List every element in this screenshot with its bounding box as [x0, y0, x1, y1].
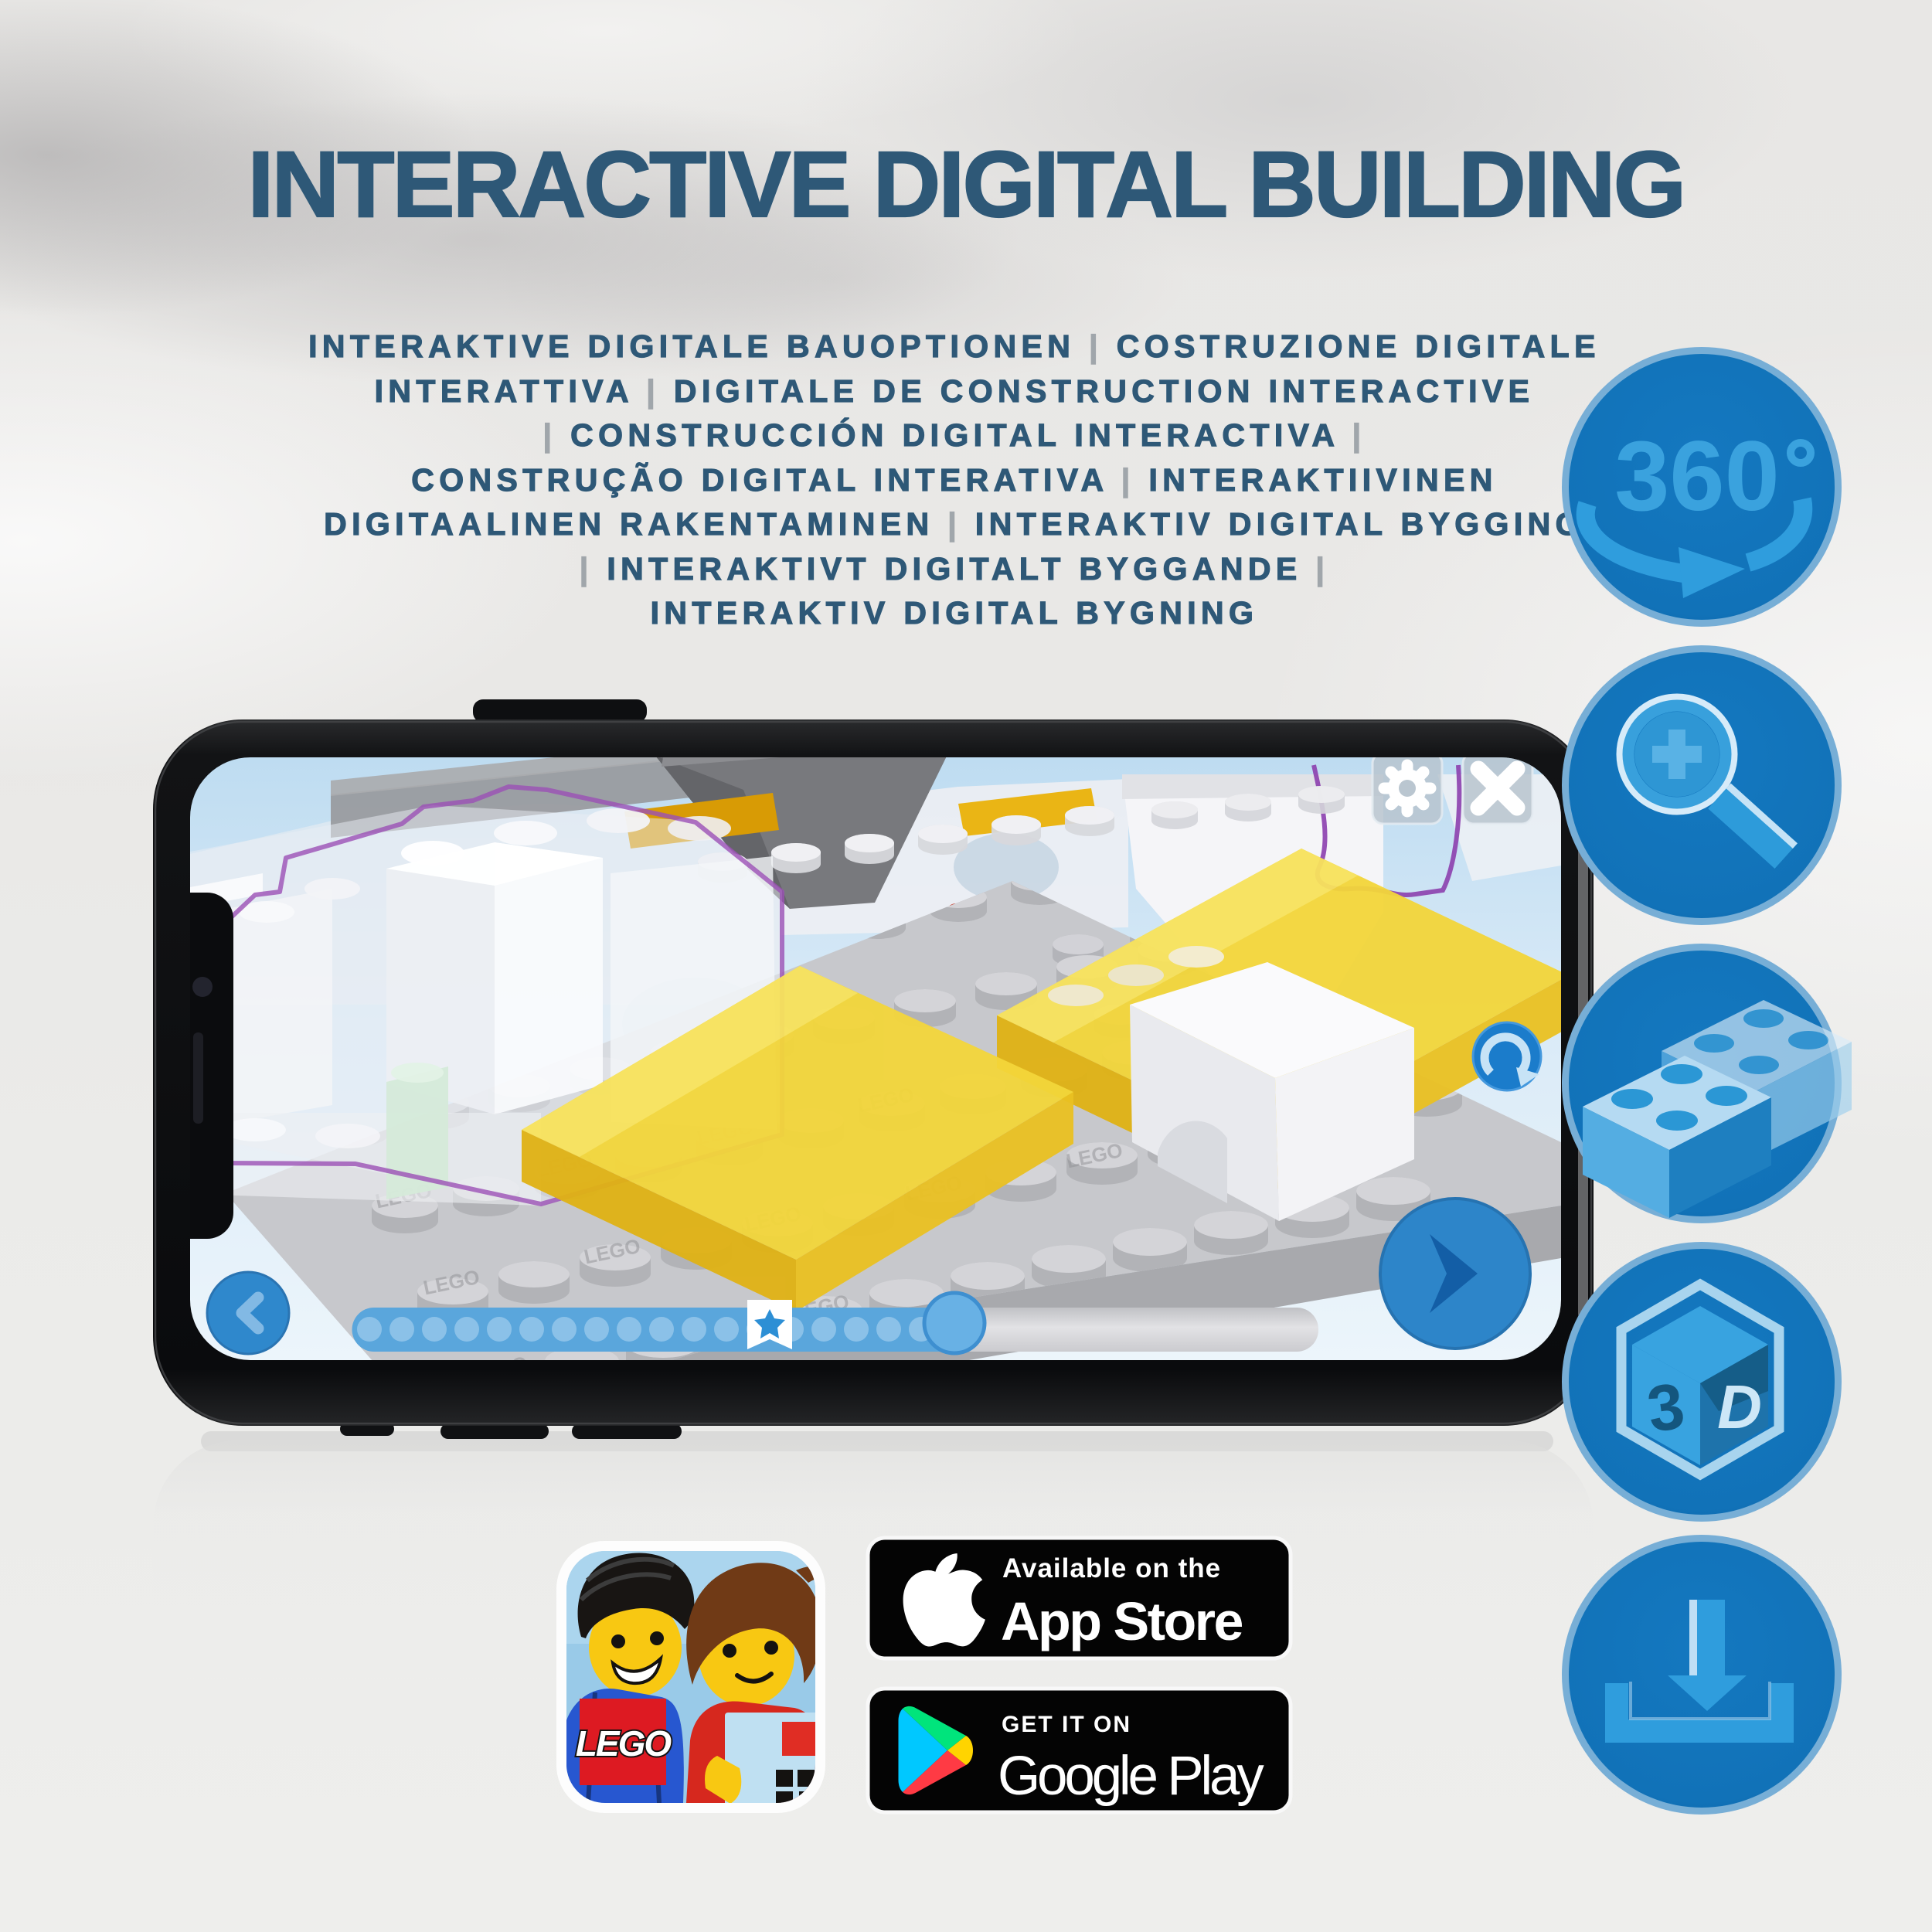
svg-text:App Store: App Store [1001, 1591, 1243, 1651]
svg-text:360: 360 [1614, 421, 1780, 532]
svg-text:GET IT ON: GET IT ON [1002, 1712, 1131, 1737]
svg-text:D: D [1717, 1372, 1762, 1441]
svg-text:Available on the: Available on the [1002, 1553, 1221, 1583]
svg-text:LEGO: LEGO [576, 1723, 672, 1764]
svg-text:Google Play: Google Play [998, 1746, 1264, 1807]
